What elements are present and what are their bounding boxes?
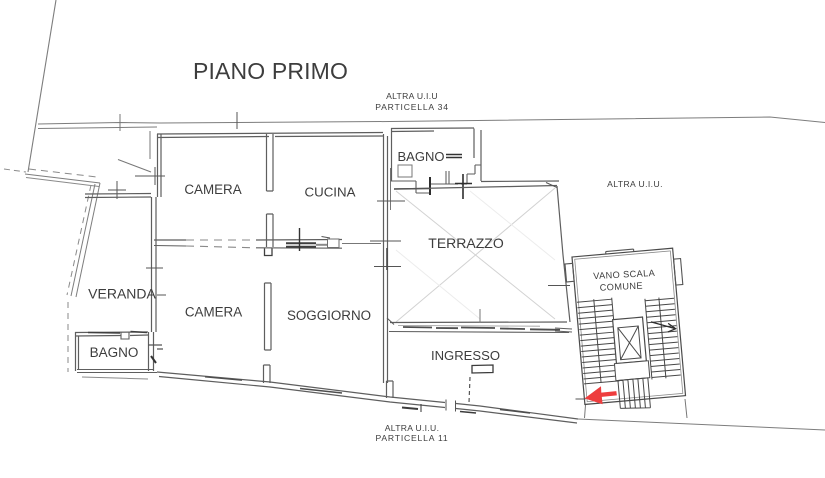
svg-text:PARTICELLA 11: PARTICELLA 11 — [376, 433, 449, 443]
svg-text:ALTRA U.I.U.: ALTRA U.I.U. — [385, 423, 440, 433]
svg-text:ALTRA U.I.U.: ALTRA U.I.U. — [607, 179, 663, 189]
svg-text:TERRAZZO: TERRAZZO — [428, 235, 504, 251]
svg-text:VERANDA: VERANDA — [88, 286, 156, 302]
svg-text:SOGGIORNO: SOGGIORNO — [287, 308, 371, 323]
svg-text:VANO SCALA: VANO SCALA — [593, 268, 656, 281]
svg-text:ALTRA U.I.U: ALTRA U.I.U — [386, 91, 438, 101]
svg-text:PIANO PRIMO: PIANO PRIMO — [193, 58, 348, 84]
svg-text:CAMERA: CAMERA — [184, 182, 241, 197]
svg-text:CUCINA: CUCINA — [305, 185, 356, 200]
svg-text:INGRESSO: INGRESSO — [431, 348, 500, 363]
svg-text:BAGNO: BAGNO — [398, 149, 445, 164]
svg-text:PARTICELLA 34: PARTICELLA 34 — [375, 102, 449, 112]
svg-text:CAMERA: CAMERA — [185, 305, 242, 320]
svg-text:COMUNE: COMUNE — [599, 281, 643, 293]
svg-text:BAGNO: BAGNO — [90, 345, 139, 360]
